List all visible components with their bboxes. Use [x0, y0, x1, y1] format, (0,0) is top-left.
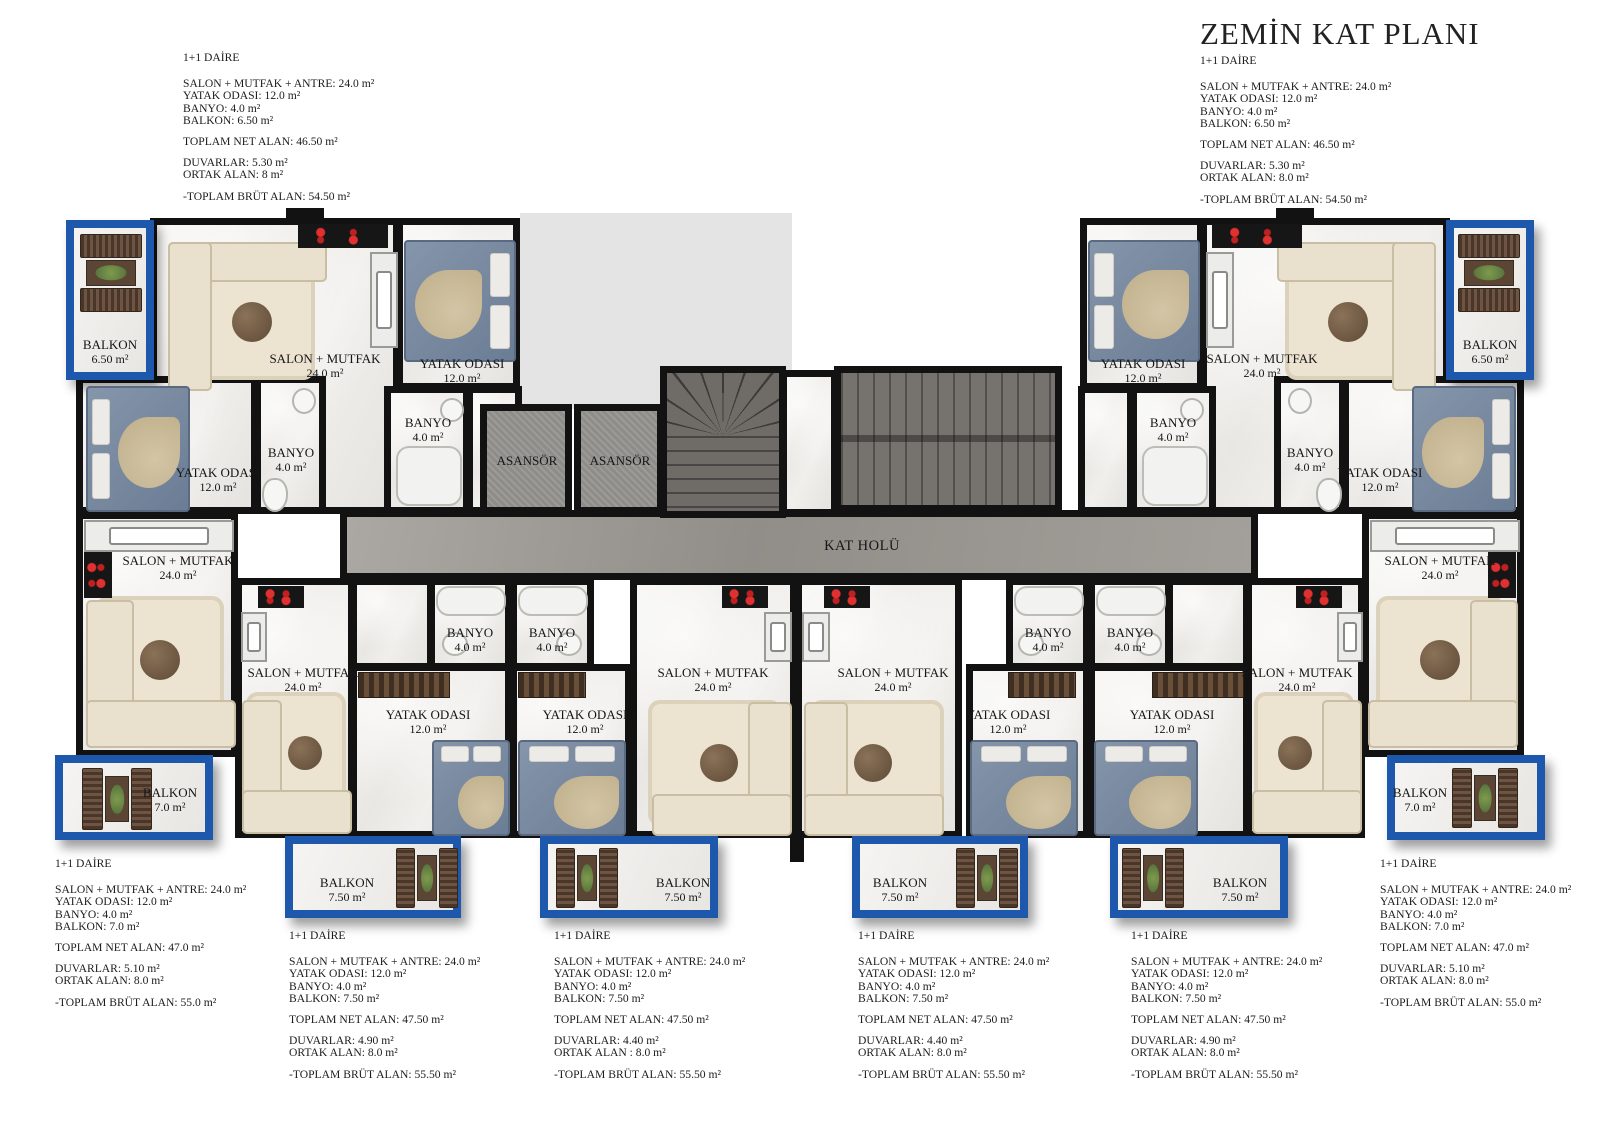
- room-entry-apt2: [350, 578, 434, 670]
- patio-chair: [80, 234, 142, 258]
- label-balcony-bottom-right: BALKON7.0 m²: [1393, 786, 1447, 814]
- patio-chair: [1458, 234, 1520, 258]
- patio-chair: [1165, 848, 1184, 908]
- coffee-table: [1420, 640, 1460, 680]
- wall-stub: [790, 836, 804, 862]
- bathtub: [396, 446, 462, 506]
- label-bedroom-right-side: YATAK ODASI12.0 m²: [1338, 466, 1423, 494]
- spec-block-top-right: 1+1 DAİRE SALON + MUTFAK + ANTRE: 24.0 m…: [1200, 55, 1391, 206]
- sofa: [652, 794, 792, 836]
- patio-set: [956, 848, 1018, 908]
- patio-chair: [999, 848, 1018, 908]
- toilet: [262, 478, 288, 512]
- coffee-table: [140, 640, 180, 680]
- corridor-kat-holu: [340, 510, 1258, 580]
- coffee-table: [232, 302, 272, 342]
- patio-table: [1143, 855, 1163, 900]
- bed: [518, 740, 626, 836]
- spec-heading: 1+1 DAİRE: [1380, 858, 1571, 870]
- label-elevator-2: ASANSÖR: [590, 454, 651, 468]
- patio-table: [1474, 775, 1496, 820]
- stairwell-fan: [660, 366, 786, 518]
- stair-treads: [667, 436, 779, 511]
- bed-throw: [1129, 776, 1191, 829]
- kitchen-counter: [370, 252, 398, 348]
- wardrobe: [358, 672, 450, 698]
- stove-icon: [298, 224, 388, 248]
- label-balcony-bottom-left: BALKON7.0 m²: [143, 786, 197, 814]
- stove-icon: [1296, 586, 1342, 608]
- sofa: [804, 794, 944, 836]
- label-elevator-1: ASANSÖR: [497, 454, 558, 468]
- patio-table: [577, 855, 597, 900]
- label-bedroom-apt5: YATAK ODASI12.0 m²: [1130, 708, 1215, 736]
- spec-block-top-left: 1+1 DAİRE SALON + MUTFAK + ANTRE: 24.0 m…: [183, 52, 374, 203]
- room-entry-top-right: [1078, 386, 1134, 514]
- spec-block-mid-3: 1+1 DAİRE SALON + MUTFAK + ANTRE: 24.0 m…: [858, 930, 1049, 1081]
- label-salon-apt3: SALON + MUTFAK24.0 m²: [657, 666, 768, 694]
- label-bedroom-apt3: YATAK ODASI12.0 m²: [543, 708, 628, 736]
- patio-table: [977, 855, 997, 900]
- bathtub: [1096, 586, 1166, 616]
- kitchen-counter: [84, 520, 234, 552]
- wall-stub: [286, 208, 324, 220]
- sofa: [1252, 790, 1362, 834]
- label-salon-left-side: SALON + MUTFAK24.0 m²: [122, 554, 233, 582]
- stove-icon: [824, 586, 870, 608]
- label-bath-apt2: BANYO4.0 m²: [447, 626, 493, 654]
- patio-chair: [956, 848, 975, 908]
- spec-block-mid-2: 1+1 DAİRE SALON + MUTFAK + ANTRE: 24.0 m…: [554, 930, 745, 1081]
- patio-table: [86, 260, 136, 286]
- label-bedroom-apt4: YATAK ODASI12.0 m²: [966, 708, 1051, 736]
- bed: [432, 740, 510, 836]
- coffee-table: [1328, 302, 1368, 342]
- label-bedroom-apt2: YATAK ODASI12.0 m²: [386, 708, 471, 736]
- coffee-table: [1278, 736, 1312, 770]
- label-bath-apt4: BANYO4.0 m²: [1025, 626, 1071, 654]
- bathtub: [436, 586, 506, 616]
- spec-heading: 1+1 DAİRE: [554, 930, 745, 942]
- patio-chair: [556, 848, 575, 908]
- bed: [1088, 240, 1200, 362]
- patio-table: [417, 855, 437, 900]
- patio-chair: [82, 768, 103, 830]
- bed-throw: [1122, 270, 1189, 338]
- patio-chair: [439, 848, 458, 908]
- label-salon-apt5: SALON + MUTFAK24.0 m²: [1241, 666, 1352, 694]
- label-salon-right-side: SALON + MUTFAK24.0 m²: [1384, 554, 1495, 582]
- label-bedroom-left-side: YATAK ODASI12.0 m²: [176, 466, 261, 494]
- bed: [970, 740, 1078, 836]
- patio-chair: [1498, 768, 1518, 828]
- patio-set: [1122, 848, 1184, 908]
- label-bath-top-right: BANYO4.0 m²: [1150, 416, 1196, 444]
- label-balcony-apt5: BALKON7.50 m²: [1213, 876, 1267, 904]
- label-bath-apt3: BANYO4.0 m²: [529, 626, 575, 654]
- label-bath-right-side: BANYO4.0 m²: [1287, 446, 1333, 474]
- label-corridor: KAT HOLÜ: [824, 539, 900, 553]
- patio-set: [396, 848, 458, 908]
- patio-set: [1458, 234, 1520, 312]
- bath-sink: [292, 388, 316, 414]
- patio-set: [82, 768, 152, 830]
- bed-throw: [118, 417, 180, 488]
- room-entry-apt5: [1166, 578, 1250, 670]
- patio-chair: [599, 848, 618, 908]
- stove-icon: [258, 586, 304, 608]
- bath-sink: [1288, 388, 1312, 414]
- floor-plan-page: ZEMİN KAT PLANI 1+1 DAİRE SALON + MUTFAK…: [0, 0, 1600, 1131]
- spec-heading: 1+1 DAİRE: [858, 930, 1049, 942]
- spec-heading: 1+1 DAİRE: [183, 52, 374, 64]
- spec-block-mid-1: 1+1 DAİRE SALON + MUTFAK + ANTRE: 24.0 m…: [289, 930, 480, 1081]
- page-title: ZEMİN KAT PLANI: [1200, 16, 1480, 52]
- patio-chair: [80, 288, 142, 312]
- spec-heading: 1+1 DAİRE: [1200, 55, 1391, 67]
- patio-chair: [1452, 768, 1472, 828]
- patio-chair: [1458, 288, 1520, 312]
- patio-table: [1464, 260, 1514, 286]
- label-bedroom-top-left: YATAK ODASI12.0 m²: [420, 357, 505, 385]
- bed-throw: [554, 776, 618, 829]
- kitchen-counter: [241, 612, 267, 662]
- kitchen-counter: [802, 612, 830, 662]
- bed: [86, 386, 190, 512]
- core-landing: [780, 370, 838, 516]
- coffee-table: [288, 736, 322, 770]
- bathtub: [1142, 446, 1208, 506]
- label-balcony-apt4: BALKON7.50 m²: [873, 876, 927, 904]
- wardrobe: [518, 672, 586, 698]
- wall-stub: [1276, 208, 1314, 220]
- kitchen-counter: [1370, 520, 1520, 552]
- bed: [1412, 386, 1516, 512]
- spec-block-bottom-right: 1+1 DAİRE SALON + MUTFAK + ANTRE: 24.0 m…: [1380, 858, 1571, 1009]
- bed: [404, 240, 516, 362]
- stove-icon: [84, 552, 112, 598]
- label-balcony-top-right: BALKON6.50 m²: [1463, 338, 1517, 366]
- label-bedroom-top-right: YATAK ODASI12.0 m²: [1101, 357, 1186, 385]
- label-balcony-apt2: BALKON7.50 m²: [320, 876, 374, 904]
- kitchen-counter: [764, 612, 792, 662]
- label-salon-top-right: SALON + MUTFAK24.0 m²: [1206, 352, 1317, 380]
- sofa: [1392, 242, 1436, 391]
- bathtub: [518, 586, 588, 616]
- label-bath-left-side: BANYO4.0 m²: [268, 446, 314, 474]
- spec-block-bottom-left: 1+1 DAİRE SALON + MUTFAK + ANTRE: 24.0 m…: [55, 858, 246, 1009]
- stair-winders: [667, 373, 779, 436]
- stove-icon: [722, 586, 768, 608]
- kitchen-counter: [1206, 252, 1234, 348]
- spec-heading: 1+1 DAİRE: [1131, 930, 1322, 942]
- sofa: [242, 790, 352, 834]
- wardrobe: [1008, 672, 1076, 698]
- patio-table: [105, 776, 128, 823]
- bathtub: [1014, 586, 1084, 616]
- patio-set: [556, 848, 618, 908]
- bed-throw: [458, 776, 504, 829]
- sofa: [168, 242, 212, 391]
- label-bath-top-left: BANYO4.0 m²: [405, 416, 451, 444]
- label-balcony-apt3: BALKON7.50 m²: [656, 876, 710, 904]
- spec-block-mid-4: 1+1 DAİRE SALON + MUTFAK + ANTRE: 24.0 m…: [1131, 930, 1322, 1081]
- patio-set: [1452, 768, 1518, 828]
- label-salon-apt4: SALON + MUTFAK24.0 m²: [837, 666, 948, 694]
- spec-heading: 1+1 DAİRE: [289, 930, 480, 942]
- patio-chair: [1122, 848, 1141, 908]
- patio-chair: [396, 848, 415, 908]
- coffee-table: [854, 744, 892, 782]
- bed: [1094, 740, 1198, 836]
- kitchen-counter: [1337, 612, 1363, 662]
- sofa: [1368, 700, 1518, 748]
- bed-throw: [1006, 776, 1070, 829]
- label-salon-top-left: SALON + MUTFAK24.0 m²: [269, 352, 380, 380]
- label-salon-apt2: SALON + MUTFAK24.0 m²: [247, 666, 358, 694]
- bed-throw: [1422, 417, 1484, 488]
- wardrobe: [1152, 672, 1244, 698]
- sofa: [86, 700, 236, 748]
- patio-set: [80, 234, 142, 312]
- spec-heading: 1+1 DAİRE: [55, 858, 246, 870]
- label-bath-apt5: BANYO4.0 m²: [1107, 626, 1153, 654]
- coffee-table: [700, 744, 738, 782]
- stairwell-straight: [834, 366, 1062, 512]
- stove-icon: [1212, 224, 1302, 248]
- bed-throw: [415, 270, 482, 338]
- label-balcony-top-left: BALKON6.50 m²: [83, 338, 137, 366]
